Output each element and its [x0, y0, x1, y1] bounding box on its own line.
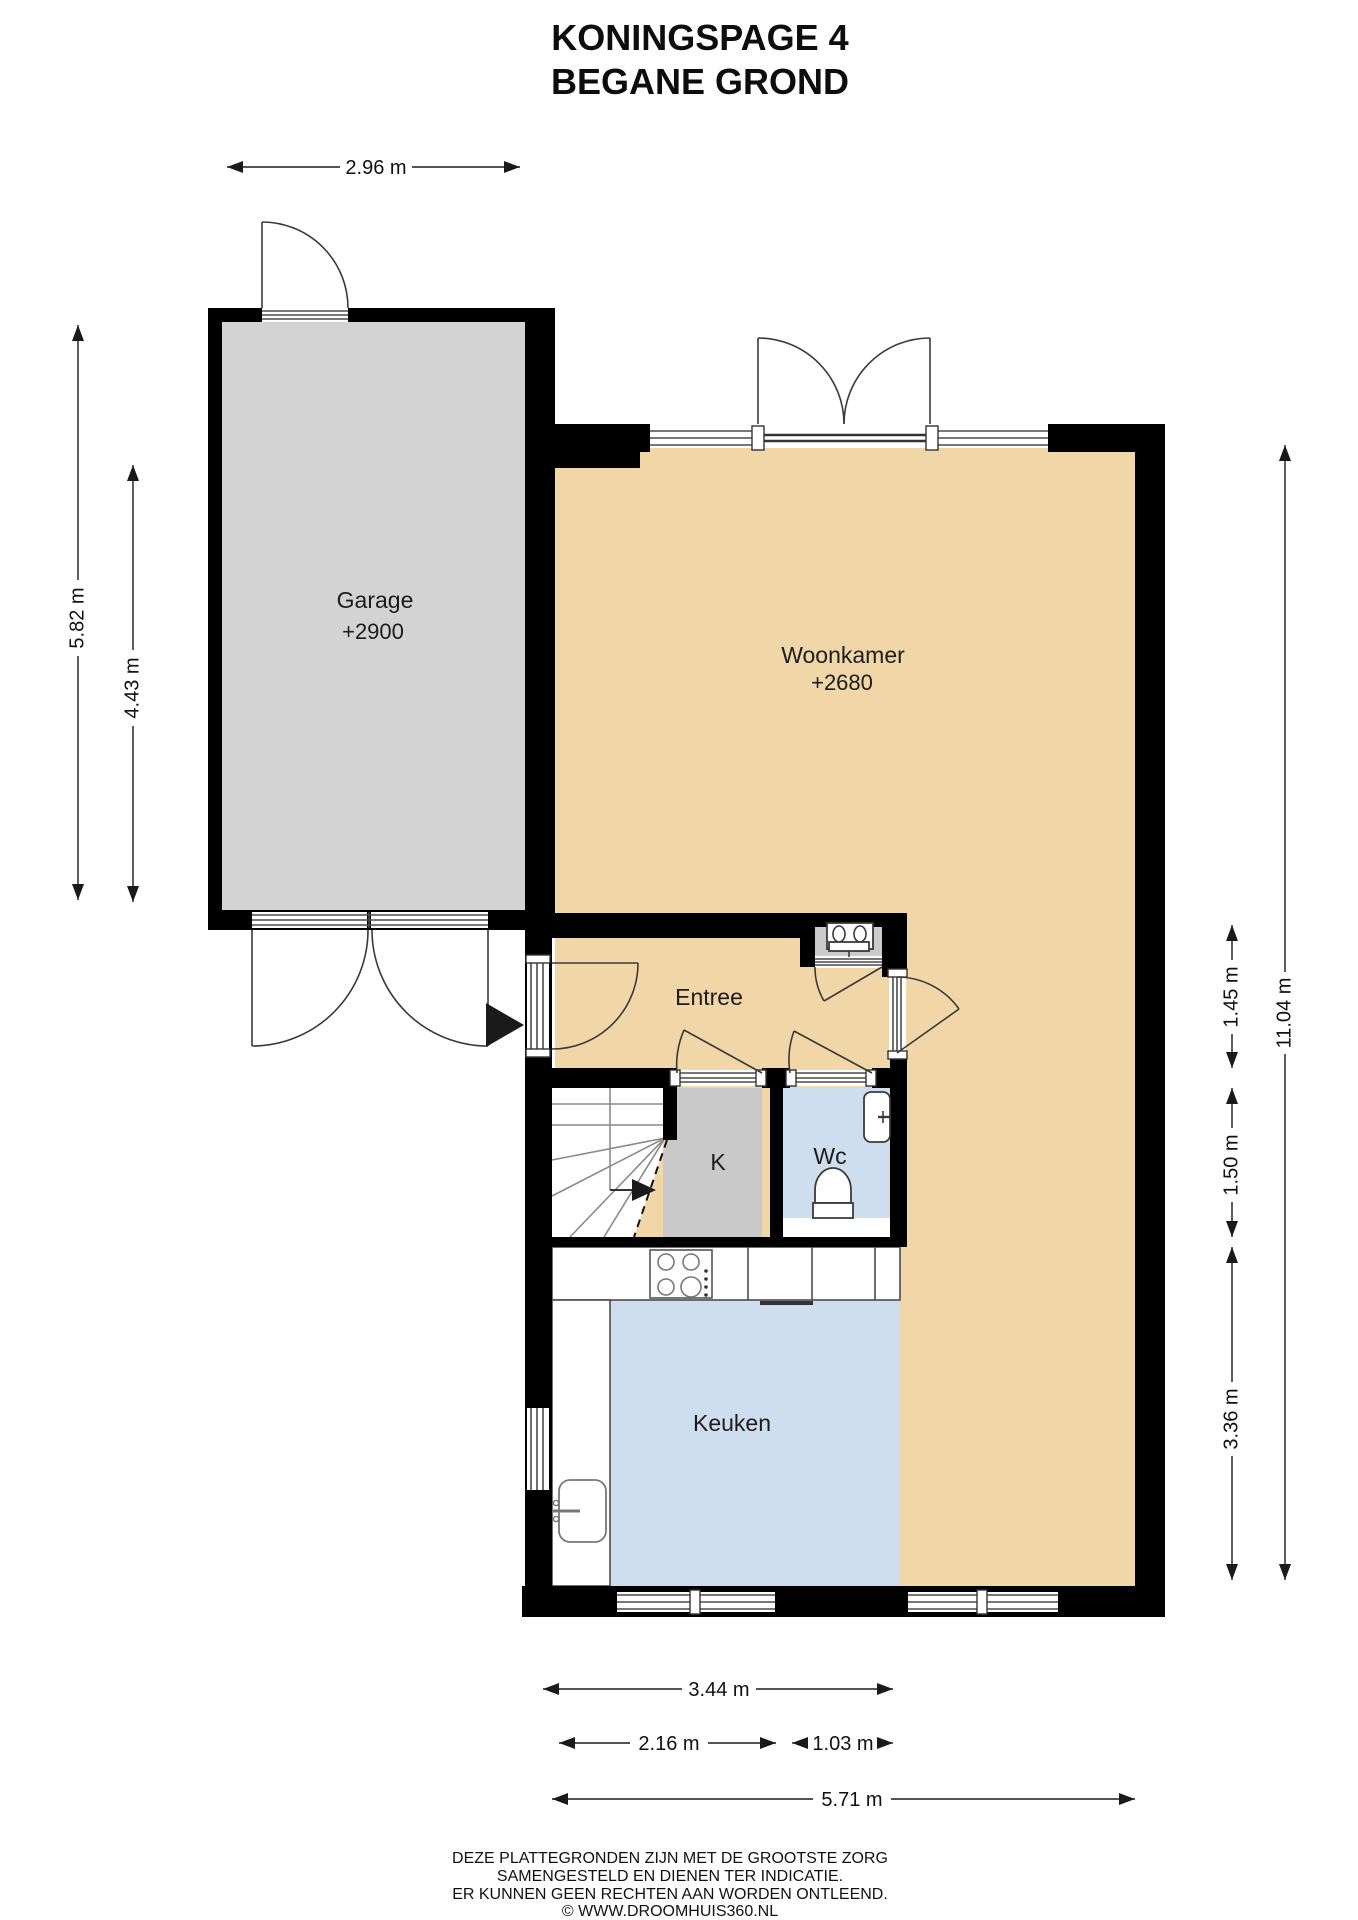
window-bottom-left: [617, 1590, 775, 1614]
dimension-bottom-3: 1.03 m: [792, 1733, 893, 1755]
window-woonkamer-top-right: [930, 428, 1048, 448]
dimension-left-inner: 4.43 m: [121, 465, 143, 902]
wall-right: [1135, 424, 1165, 1617]
wash-basin-icon: [864, 1092, 890, 1142]
dimension-left-outer: 5.82 m: [66, 325, 88, 900]
door-jamb: [926, 426, 938, 450]
dimension-right-total: 11.04 m: [1273, 445, 1295, 1580]
toilet-icon: [813, 1168, 853, 1218]
garage-level-label: +2900: [342, 619, 404, 644]
appliance-front: [760, 1301, 813, 1305]
floorplan-page: Garage +2900 Woonkamer +2680 Entree K Wc…: [0, 0, 1358, 1920]
wall-top-left: [555, 424, 650, 452]
dimension-bottom-1: 3.44 m: [543, 1679, 893, 1701]
page-title-line2: BEGANE GROND: [551, 61, 849, 102]
woonkamer-label: Woonkamer: [781, 642, 905, 668]
dimension-right-closet: 1.50 m: [1220, 1088, 1242, 1237]
garage-bottom-doors-swing: [252, 930, 488, 1046]
closet-door-threshold: [670, 1070, 766, 1086]
floors: [222, 322, 1135, 1591]
dim-label-left-outer: 5.82 m: [66, 587, 88, 648]
dim-label-bottom-3: 1.03 m: [812, 1733, 873, 1755]
entree-woonkamer-door-band: [888, 969, 907, 1059]
dim-label-bottom-2: 2.16 m: [638, 1733, 699, 1755]
dim-label-right-3: 3.36 m: [1220, 1388, 1242, 1449]
wall-garage-house: [525, 308, 555, 938]
dim-label-bottom-4: 5.71 m: [821, 1789, 882, 1811]
kitchen-counter-top: [552, 1247, 900, 1300]
dimension-right-kitchen: 3.36 m: [1220, 1247, 1242, 1580]
dim-label-right-4: 11.04 m: [1273, 978, 1295, 1049]
garage-bottom-threshold: [252, 912, 488, 928]
wall-entree-bottom-right: [872, 1068, 907, 1088]
keuken-label: Keuken: [693, 1410, 771, 1436]
disclaimer-footer: DEZE PLATTEGRONDEN ZIJN MET DE GROOTSTE …: [452, 1850, 888, 1920]
wc-door-threshold: [786, 1070, 876, 1086]
page-title-line1: KONINGSPAGE 4: [551, 17, 848, 58]
dimension-right-entree: 1.45 m: [1220, 925, 1242, 1068]
dim-label-top: 2.96 m: [345, 157, 406, 179]
wall-garage-left: [208, 308, 222, 930]
window-kitchen-left: [527, 1408, 549, 1490]
door-jamb: [752, 426, 764, 450]
wall-entree-top: [555, 913, 800, 938]
entrance-arrow-icon: [486, 1003, 524, 1047]
niche-window: [815, 956, 882, 968]
cooktop-icon: [650, 1250, 712, 1298]
footer-line3: ER KUNNEN GEEN RECHTEN AAN WORDEN ONTLEE…: [452, 1886, 888, 1903]
garage-top-door-swing: [262, 222, 348, 308]
dim-label-left-inner: 4.43 m: [121, 657, 143, 718]
wc-label: Wc: [813, 1143, 846, 1169]
garage-label: Garage: [337, 587, 414, 613]
window-woonkamer-top-left: [650, 428, 758, 448]
window-bottom-right: [908, 1590, 1058, 1614]
dimension-top-garage-width: 2.96 m: [227, 157, 520, 179]
floorplan-drawing: Garage +2900 Woonkamer +2680 Entree K Wc…: [0, 0, 1358, 1920]
woonkamer-level-label: +2680: [811, 670, 873, 695]
footer-line2: SAMENGESTELD EN DIENEN TER INDICATIE.: [497, 1868, 843, 1885]
wall-niche-left: [800, 913, 815, 967]
dim-label-right-1: 1.45 m: [1220, 966, 1242, 1027]
floor-garage: [222, 322, 525, 910]
wall-kitchen-top: [552, 1237, 907, 1247]
closet-label: K: [710, 1149, 726, 1175]
wall-niche-right: [882, 913, 907, 977]
wall-stairs-closet: [663, 1088, 677, 1140]
garage-top-threshold: [262, 308, 348, 322]
kitchen-counter-left: [552, 1300, 610, 1586]
floor-keuken: [610, 1300, 900, 1591]
wc-ledge: [783, 1218, 890, 1237]
french-door-threshold: [758, 428, 930, 448]
footer-line1: DEZE PLATTEGRONDEN ZIJN MET DE GROOTSTE …: [452, 1850, 888, 1867]
wall-garage-top: [208, 308, 542, 322]
footer-line4: © WWW.DROOMHUIS360.NL: [562, 1903, 778, 1920]
dimension-bottom-2: 2.16 m: [559, 1733, 776, 1755]
dim-label-right-2: 1.50 m: [1220, 1134, 1242, 1195]
kitchen-sink-icon: [552, 1480, 606, 1542]
front-door-band: [526, 955, 550, 1057]
wall-wc-left: [770, 1088, 783, 1237]
dimension-bottom-4: 5.71 m: [552, 1789, 1135, 1811]
french-doors-swing: [758, 338, 930, 424]
entree-label: Entree: [675, 984, 743, 1010]
wall-top-left-step: [555, 452, 640, 468]
wall-entree-bottom-left: [552, 1068, 677, 1088]
plan-title: KONINGSPAGE 4 BEGANE GROND: [551, 17, 849, 102]
dim-label-bottom-1: 3.44 m: [688, 1679, 749, 1701]
